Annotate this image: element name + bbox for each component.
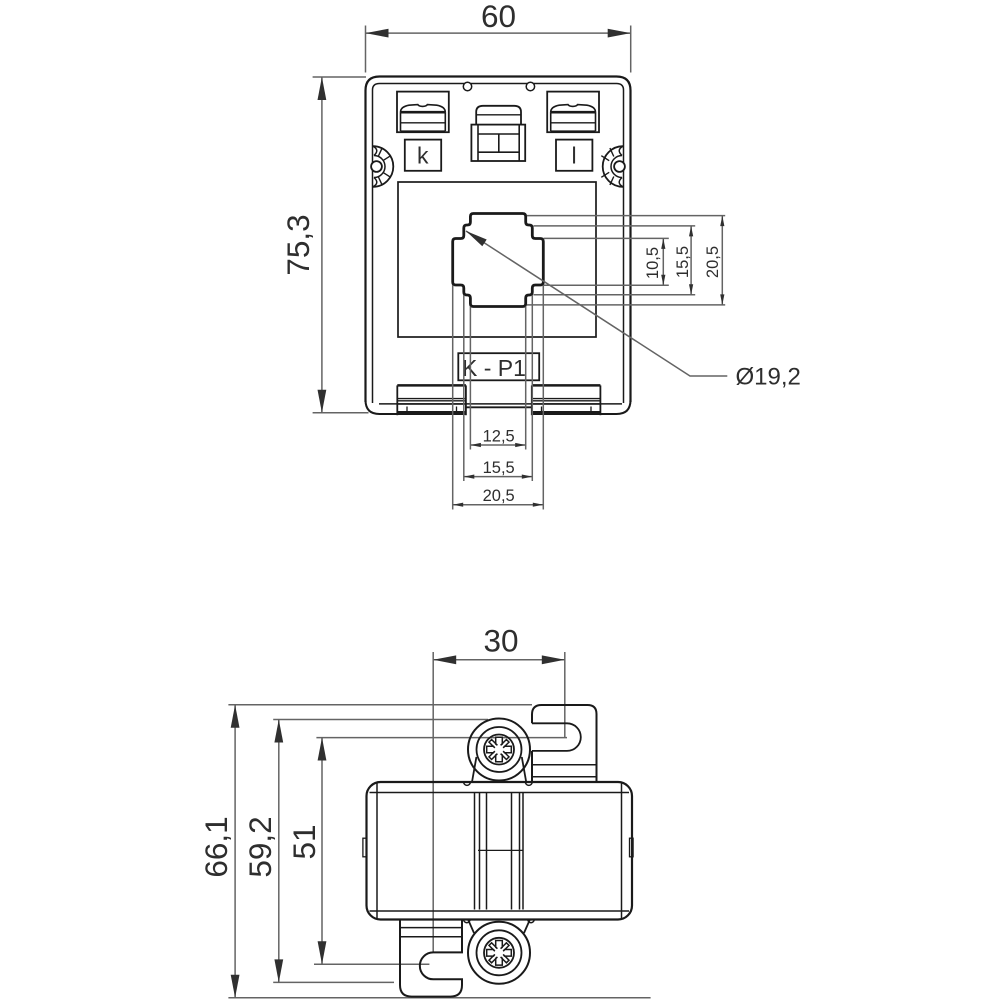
svg-text:66,1: 66,1 — [198, 816, 234, 877]
svg-text:15,5: 15,5 — [483, 459, 515, 477]
svg-text:k: k — [417, 143, 429, 169]
svg-text:30: 30 — [483, 623, 518, 659]
svg-text:60: 60 — [481, 0, 516, 34]
svg-text:10,5: 10,5 — [644, 247, 662, 279]
svg-text:Ø19,2: Ø19,2 — [736, 364, 801, 391]
svg-text:59,2: 59,2 — [242, 816, 278, 877]
svg-text:12,5: 12,5 — [483, 427, 515, 445]
svg-text:20,5: 20,5 — [483, 487, 515, 505]
svg-text:K - P1: K - P1 — [462, 355, 526, 381]
svg-text:20,5: 20,5 — [704, 246, 722, 278]
svg-text:15,5: 15,5 — [674, 246, 692, 278]
svg-text:51: 51 — [286, 824, 322, 859]
svg-text:75,3: 75,3 — [280, 214, 316, 275]
svg-text:l: l — [571, 143, 576, 169]
